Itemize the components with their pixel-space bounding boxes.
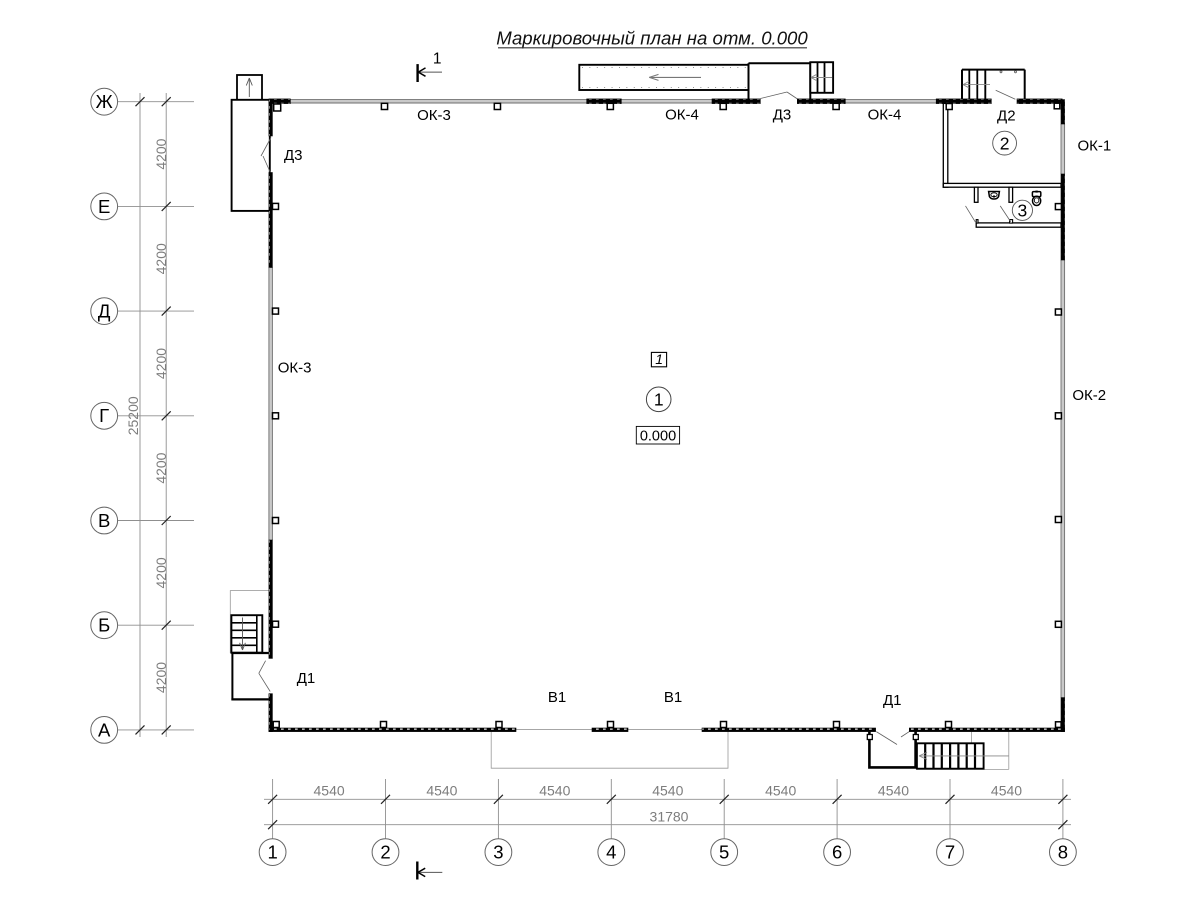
svg-text:ОК-4: ОК-4 [868,107,902,124]
svg-text:ОК-4: ОК-4 [665,107,699,124]
svg-text:Маркировочный план на отм. 0.0: Маркировочный план на отм. 0.000 [496,28,808,49]
svg-text:7: 7 [945,842,955,863]
svg-text:Д1: Д1 [883,692,902,709]
svg-text:ОК-3: ОК-3 [417,107,451,124]
svg-text:1: 1 [433,50,442,67]
svg-text:4200: 4200 [153,557,169,588]
svg-text:4540: 4540 [539,783,570,799]
svg-text:4200: 4200 [153,138,169,169]
svg-text:3: 3 [1018,200,1028,220]
svg-text:4540: 4540 [652,783,683,799]
svg-text:0.000: 0.000 [640,428,676,444]
svg-text:4200: 4200 [153,348,169,379]
svg-text:А: А [98,719,111,740]
svg-text:1: 1 [655,351,663,367]
svg-text:4540: 4540 [426,783,457,799]
svg-text:ОК-1: ОК-1 [1078,138,1112,155]
svg-text:В1: В1 [548,689,566,706]
svg-text:4540: 4540 [878,783,909,799]
svg-text:ОК-3: ОК-3 [278,360,312,377]
svg-text:Е: Е [98,196,110,217]
svg-text:5: 5 [719,842,729,863]
svg-text:Д: Д [98,301,111,322]
svg-text:В: В [98,510,110,531]
svg-text:Д3: Д3 [773,107,792,124]
svg-text:25200: 25200 [125,396,141,435]
svg-text:8: 8 [1058,842,1068,863]
svg-text:2: 2 [1000,133,1010,153]
svg-text:4200: 4200 [153,452,169,483]
svg-text:Б: Б [98,615,110,636]
svg-text:1: 1 [654,390,664,410]
svg-text:Д3: Д3 [284,147,303,164]
svg-text:31780: 31780 [650,809,689,825]
svg-text:4540: 4540 [314,783,345,799]
svg-text:Г: Г [99,405,109,426]
svg-text:ОК-2: ОК-2 [1072,387,1106,404]
svg-text:Д1: Д1 [297,670,316,687]
svg-text:4200: 4200 [153,243,169,274]
svg-text:4: 4 [606,842,616,863]
svg-text:В1: В1 [664,689,682,706]
svg-text:4200: 4200 [153,662,169,693]
svg-text:1: 1 [267,842,277,863]
svg-text:2: 2 [380,842,390,863]
svg-text:6: 6 [832,842,842,863]
svg-text:4540: 4540 [765,783,796,799]
svg-text:Д2: Д2 [997,108,1016,125]
svg-text:Ж: Ж [96,91,113,112]
svg-text:4540: 4540 [991,783,1022,799]
svg-text:3: 3 [493,842,503,863]
